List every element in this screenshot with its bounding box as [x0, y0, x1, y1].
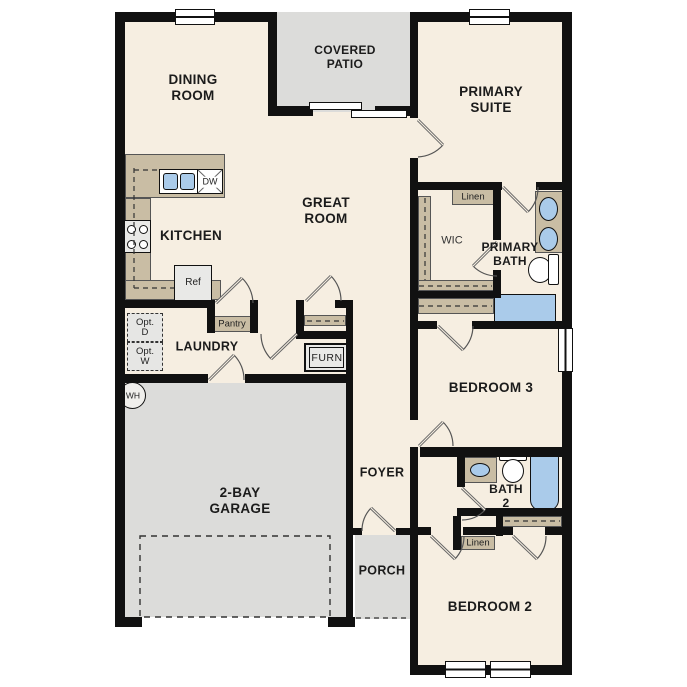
bedroom2-closet-shelf: [502, 516, 562, 527]
wall: [115, 300, 215, 308]
room-label-wic: WIC: [441, 235, 462, 248]
wall: [410, 329, 418, 420]
wall: [420, 447, 572, 457]
burner-icon: [139, 225, 148, 234]
room-label-laundry: LAUNDRY: [176, 340, 239, 355]
wall: [410, 12, 418, 118]
window: [445, 661, 486, 678]
bath2-tub: [530, 451, 559, 511]
wall: [410, 182, 502, 190]
wall: [346, 300, 353, 627]
burner-icon: [139, 240, 148, 249]
vanity-sink-icon: [539, 197, 558, 221]
wic-shelf-left: [418, 196, 431, 281]
room-label-bedroom2: BEDROOM 2: [448, 599, 532, 615]
room-label-foyer: FOYER: [360, 466, 405, 481]
room-label-primary-suite: PRIMARY SUITE: [459, 84, 523, 116]
wall: [463, 527, 513, 535]
coat-closet-shelf: [304, 315, 346, 326]
wall: [268, 12, 277, 116]
label-optional-washer: Opt. W: [136, 347, 154, 367]
primary-shower: [494, 294, 556, 324]
wall: [493, 270, 501, 298]
label-water-heater: WH: [126, 392, 140, 401]
label-linen-lower: Linen: [466, 537, 489, 548]
room-label-porch: PORCH: [359, 564, 406, 579]
vanity-sink-icon: [539, 227, 558, 251]
wall: [453, 516, 461, 550]
burner-icon: [127, 225, 136, 234]
window: [175, 9, 215, 25]
wall: [353, 528, 362, 535]
wall: [410, 447, 418, 675]
window: [558, 328, 573, 372]
bedroom3-closet-shelf: [418, 298, 494, 314]
primary-toilet-tank: [548, 254, 559, 285]
label-furnace: FURN: [311, 352, 342, 364]
room-label-covered-patio: COVERED PATIO: [314, 43, 375, 71]
bath2-toilet-bowl: [502, 459, 524, 483]
wall: [115, 374, 208, 383]
sink-basin-left: [163, 173, 178, 190]
window: [469, 9, 510, 25]
label-pantry: Pantry: [218, 318, 245, 329]
room-label-great-room: GREAT ROOM: [302, 195, 350, 227]
wall: [250, 300, 258, 333]
wic-shelf-bottom: [418, 280, 494, 291]
room-label-primary-bath: PRIMARY BATH: [482, 240, 539, 268]
room-label-bedroom3: BEDROOM 3: [449, 380, 533, 396]
label-optional-dryer: Opt. D: [136, 318, 154, 338]
wall: [493, 190, 501, 240]
bath2-sink-icon: [470, 463, 490, 477]
stove: [123, 220, 151, 253]
room-label-kitchen: KITCHEN: [160, 228, 222, 244]
burner-icon: [127, 240, 136, 249]
label-refrigerator: Ref: [185, 277, 201, 289]
window: [490, 661, 531, 678]
wall: [245, 374, 353, 383]
wall: [410, 321, 437, 329]
wall: [410, 291, 501, 298]
wall: [296, 331, 353, 339]
wall: [457, 457, 465, 487]
wall: [396, 528, 410, 535]
floor-plan: DINING ROOM COVERED PATIO PRIMARY SUITE …: [0, 0, 687, 687]
room-label-garage: 2-BAY GARAGE: [209, 485, 270, 517]
wall: [115, 12, 125, 627]
sink-basin-right: [180, 173, 195, 190]
wall: [496, 516, 503, 536]
room-label-dining: DINING ROOM: [168, 72, 217, 104]
wall: [296, 300, 304, 333]
room-label-bath2: BATH 2: [489, 482, 523, 510]
sliding-door: [351, 110, 407, 118]
label-linen-upper: Linen: [461, 191, 484, 202]
label-dishwasher: DW: [202, 177, 219, 188]
wall: [472, 321, 572, 329]
wall: [410, 158, 418, 321]
sliding-door: [309, 102, 362, 110]
wall: [207, 300, 215, 333]
